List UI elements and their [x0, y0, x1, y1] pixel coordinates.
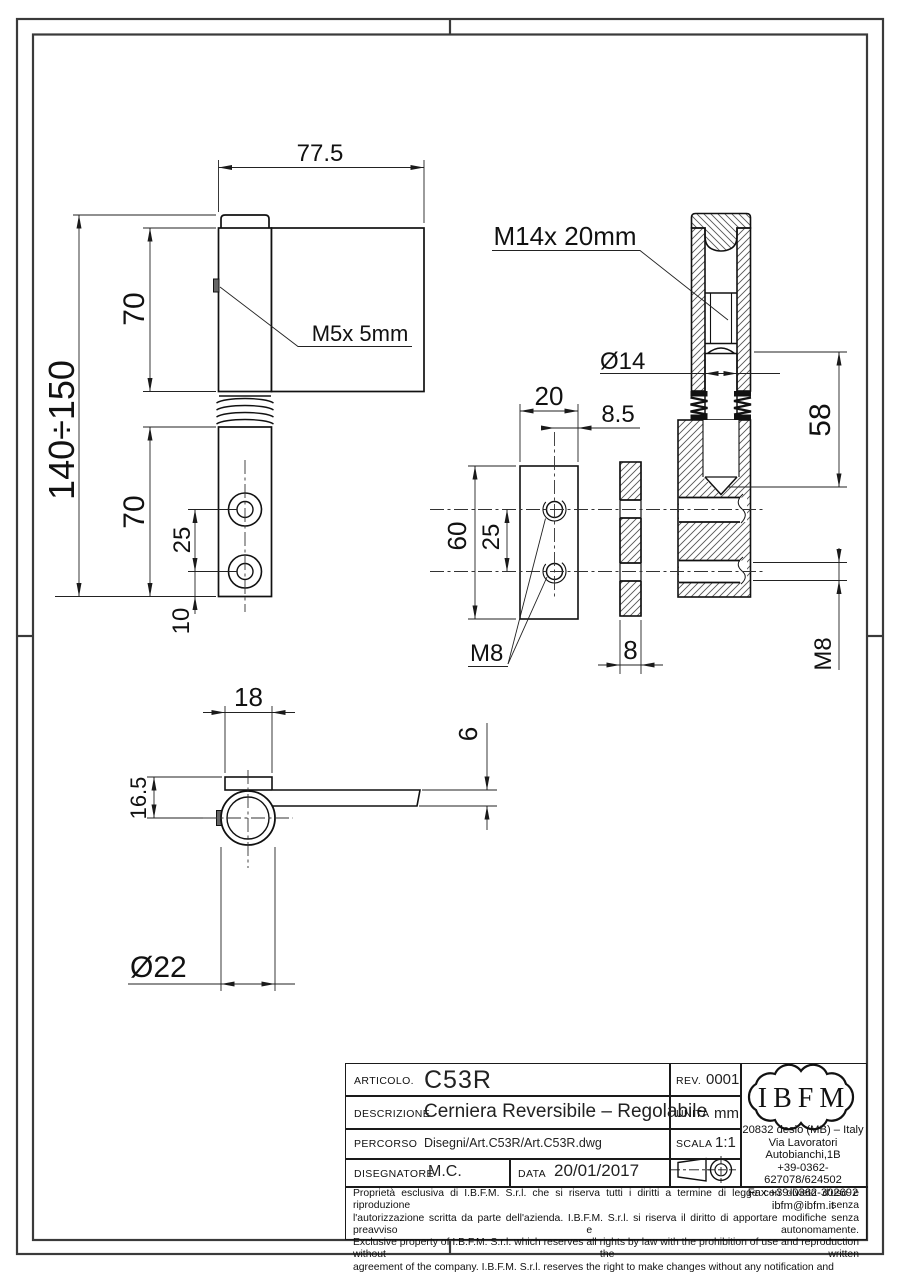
section-wall-left: [692, 228, 706, 391]
dim-plate-height: 60: [442, 522, 472, 551]
technical-drawing-sheet: 77.5 140÷150 70 70 25 10 M5x 5mm: [0, 0, 900, 1273]
front-view: [214, 215, 425, 612]
title-block: ARTICOLO. C53R REV. 0001 DESCRIZIONE Cer…: [345, 1063, 867, 1240]
section-view: [678, 214, 751, 598]
dim-plate-thickness: 8: [623, 635, 637, 665]
label-plate-thread: M8: [470, 640, 503, 667]
top-view: [203, 770, 420, 868]
rev-label: REV.: [676, 1075, 701, 1087]
label-adjust-screw: M14x 20mm: [493, 221, 636, 251]
rev-value: 0001: [706, 1071, 739, 1088]
dim-hole-spacing: 25: [169, 527, 196, 554]
hinge-barrel-upper: [219, 228, 272, 392]
top-tab: [225, 777, 272, 790]
disclaimer-line: agreement of the company. I.B.F.M. S.r.l…: [353, 1262, 859, 1273]
dim-plate-hole-edge: 8.5: [601, 401, 634, 428]
section-adjust-screw: [705, 293, 737, 344]
dim-barrel-diameter: Ø22: [130, 951, 187, 984]
disclaimer-line: l'autorizzazione scritta da parte dell'a…: [353, 1213, 859, 1238]
address-line: +39-0362-627078/624502: [742, 1162, 864, 1187]
hinge-cap: [221, 215, 269, 228]
disclaimer-line: Exclusive property of I.B.F.M. S.r.l. wh…: [353, 1237, 859, 1262]
unita-label: UNITÀ: [676, 1108, 710, 1120]
disegnatore-label: DISEGNATORE: [354, 1168, 434, 1180]
dim-pin-length: 58: [804, 403, 837, 436]
percorso-value: Disegni/Art.C53R/Art.C53R.dwg: [424, 1136, 602, 1150]
dim-lower-height: 70: [118, 495, 151, 528]
address-line: 20832 desio (MB) – Italy: [742, 1124, 864, 1137]
set-screw: [214, 279, 220, 292]
disclaimer-line: Proprietà esclusiva di I.B.F.M. S.r.l. c…: [353, 1188, 859, 1213]
dim-tab-width: 18: [234, 682, 263, 712]
articolo-value: C53R: [424, 1066, 492, 1095]
dim-arm-thickness: 6: [453, 727, 483, 741]
scala-value: 1:1: [715, 1134, 736, 1151]
dim-upper-height: 70: [118, 292, 151, 325]
section-coils: [691, 398, 752, 415]
adjustment-thread: [217, 396, 274, 424]
dim-hole-offset: 10: [168, 608, 195, 635]
top-view-dimensions: [128, 706, 497, 991]
label-body-thread: M8: [810, 637, 837, 670]
data-label: DATA: [518, 1168, 546, 1180]
disegnatore-value: M.C.: [428, 1163, 462, 1181]
top-view-labels: 18 16.5 6 Ø22: [126, 682, 483, 984]
dim-width: 77.5: [297, 140, 344, 167]
hinge-wing-plate: [272, 228, 425, 392]
dim-total-height: 140÷150: [41, 360, 82, 500]
unita-value: mm: [714, 1105, 739, 1122]
address-line: Via Lavoratori Autobianchi,1B: [742, 1137, 864, 1162]
dim-pin-diameter: Ø14: [600, 348, 645, 375]
percorso-label: PERCORSO: [354, 1138, 417, 1150]
top-arm: [272, 790, 420, 806]
section-wall-right: [737, 228, 751, 391]
label-set-screw: M5x 5mm: [312, 321, 409, 346]
data-value: 20/01/2017: [554, 1161, 639, 1181]
plate-view: [520, 432, 578, 619]
dim-plate-hole-spacing: 25: [478, 524, 505, 551]
descrizione-value: Cerniera Reversibile – Regolabile: [424, 1101, 707, 1123]
plate-side-section: [619, 462, 642, 616]
dim-tab-depth: 16.5: [126, 777, 151, 820]
dim-plate-width: 20: [535, 381, 564, 411]
legal-disclaimer: Proprietà esclusiva di I.B.F.M. S.r.l. c…: [353, 1188, 859, 1273]
articolo-label: ARTICOLO.: [354, 1075, 414, 1087]
mount-plate: [520, 466, 578, 619]
descrizione-label: DESCRIZIONE: [354, 1108, 430, 1120]
scala-label: SCALA: [676, 1138, 712, 1150]
plate-section-body: [620, 462, 641, 616]
